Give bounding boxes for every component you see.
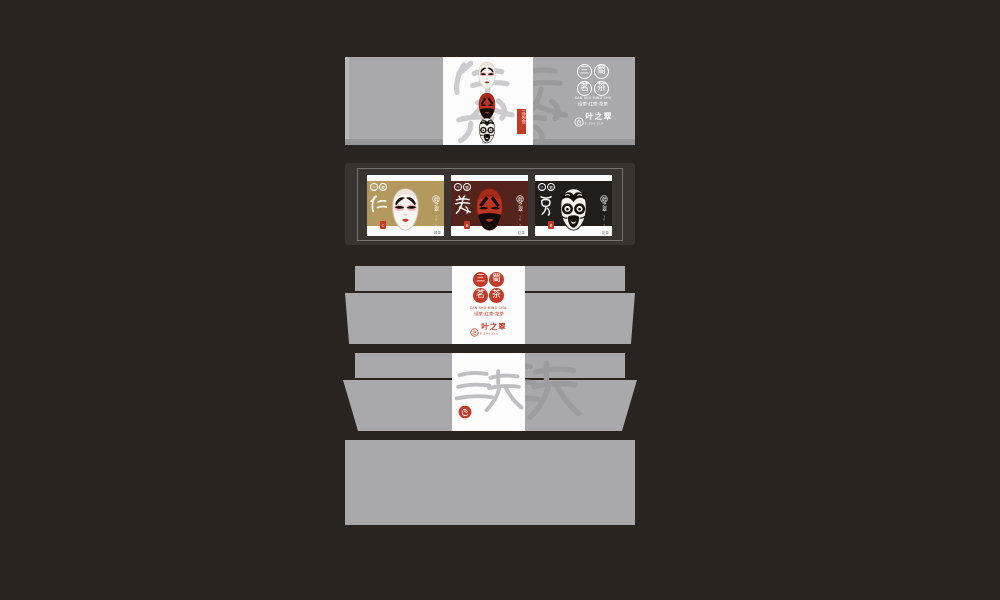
brand-block-white: 三 蜀 茗 茶 SAN SHU MING CHA 绿茶·红茶·花茶 叶之翠 YE… bbox=[557, 64, 629, 129]
series-seal: 三 bbox=[473, 272, 488, 287]
panel-lid-top: 三英会 三 蜀 茗 茶 SAN SHU MING CHA 绿茶·红茶·花茶 叶之… bbox=[345, 57, 635, 145]
artist-seal: 仁 bbox=[380, 221, 386, 229]
series-seal: 茶 bbox=[489, 288, 504, 303]
brand-name-pinyin: YE ZHI CUI bbox=[478, 332, 499, 336]
tag-label: 三英会 bbox=[518, 110, 525, 124]
pack-color-field: 三 蜀 義 叶之翠 YE ZHI CUI bbox=[451, 181, 528, 226]
mini-seal-pair: 三 蜀 bbox=[454, 183, 471, 191]
lid-front-white-band: 三 蜀 茗 茶 SAN SHU MING CHA 绿茶·红茶·花茶 叶之翠 YE… bbox=[452, 266, 525, 344]
brand-name: 叶之翠 bbox=[517, 197, 522, 211]
pack-variety-label: 绿茶 bbox=[434, 230, 441, 235]
mini-seal-pair: 三 蜀 bbox=[370, 183, 387, 191]
brand-seal-icon bbox=[574, 112, 584, 122]
lid-back-white-band bbox=[452, 353, 525, 431]
pack-color-field: 三 蜀 勇 叶之翠 YE ZHI CUI bbox=[535, 181, 612, 226]
tea-pack-yi: 三 蜀 義 叶之翠 YE ZHI CUI 红茶 bbox=[451, 175, 528, 236]
packaging-mockup-canvas: 三英会 三 蜀 茗 茶 SAN SHU MING CHA 绿茶·红茶·花茶 叶之… bbox=[0, 0, 1000, 600]
artist-seal: 義 bbox=[464, 221, 470, 229]
series-seal: 茗 bbox=[577, 81, 592, 96]
mini-seal: 蜀 bbox=[463, 183, 471, 191]
mini-seal: 三 bbox=[538, 183, 546, 191]
artist-seal: 勇 bbox=[548, 221, 554, 229]
calligraphy-character bbox=[368, 192, 387, 220]
calligraphy-character bbox=[452, 192, 471, 220]
product-varieties: 绿茶·红茶·花茶 bbox=[578, 100, 608, 107]
panel-tray: 三 蜀 仁 叶之翠 YE ZHI CUI 绿茶 三 蜀 bbox=[345, 163, 635, 245]
series-seal: 三 bbox=[577, 64, 592, 79]
series-seal: 茶 bbox=[594, 81, 609, 96]
brand-name: 叶之翠 bbox=[601, 197, 606, 211]
mini-seal-pair: 三 蜀 bbox=[538, 183, 555, 191]
brand-name-pinyin: YE ZHI CUI bbox=[582, 122, 603, 126]
mini-seal: 蜀 bbox=[379, 183, 387, 191]
brand-seal-icon bbox=[470, 322, 479, 331]
lid-left-fold-edge bbox=[345, 57, 349, 145]
series-seal: 蜀 bbox=[489, 272, 504, 287]
tea-pack-ren: 三 蜀 仁 叶之翠 YE ZHI CUI 绿茶 bbox=[367, 175, 444, 236]
mini-seal: 三 bbox=[370, 183, 378, 191]
guan-yu-opera-mask-icon bbox=[471, 187, 508, 232]
brand-seal-icon bbox=[516, 188, 524, 196]
red-seal-stamp-icon bbox=[458, 404, 472, 418]
tea-pack-yong: 三 蜀 勇 叶之翠 YE ZHI CUI 花茶 bbox=[535, 175, 612, 236]
pack-variety-label: 红茶 bbox=[518, 230, 525, 235]
product-varieties: 绿茶·红茶·花茶 bbox=[474, 310, 504, 317]
series-seal: 茗 bbox=[473, 288, 488, 303]
panel-box-bottom: 叶之翠 YE ZHI CUI QS bbox=[345, 440, 635, 525]
series-seal-grid: 三 蜀 茗 茶 bbox=[577, 64, 609, 96]
liu-bei-opera-mask-icon bbox=[474, 61, 500, 90]
brand-name: 叶之翠 bbox=[586, 111, 613, 122]
series-seal: 蜀 bbox=[594, 64, 609, 79]
red-label-tag: 三英会 bbox=[517, 109, 526, 134]
brand-name: 叶之翠 bbox=[481, 321, 507, 332]
series-seal-grid: 三 蜀 茗 茶 bbox=[473, 272, 504, 303]
brand-name: 叶之翠 bbox=[433, 197, 438, 211]
zhang-fei-opera-mask-icon bbox=[555, 187, 592, 232]
guan-yu-opera-mask-icon bbox=[474, 92, 500, 120]
liu-bei-opera-mask-icon bbox=[387, 187, 424, 232]
zhang-fei-opera-mask-icon bbox=[475, 117, 499, 144]
brand-seal-icon bbox=[600, 188, 608, 196]
brand-seal-icon bbox=[432, 188, 440, 196]
mini-seal: 蜀 bbox=[547, 183, 555, 191]
pack-color-field: 三 蜀 仁 叶之翠 YE ZHI CUI bbox=[367, 181, 444, 226]
mini-seal: 三 bbox=[454, 183, 462, 191]
pack-variety-label: 花茶 bbox=[602, 230, 609, 235]
calligraphy-character bbox=[536, 192, 555, 220]
